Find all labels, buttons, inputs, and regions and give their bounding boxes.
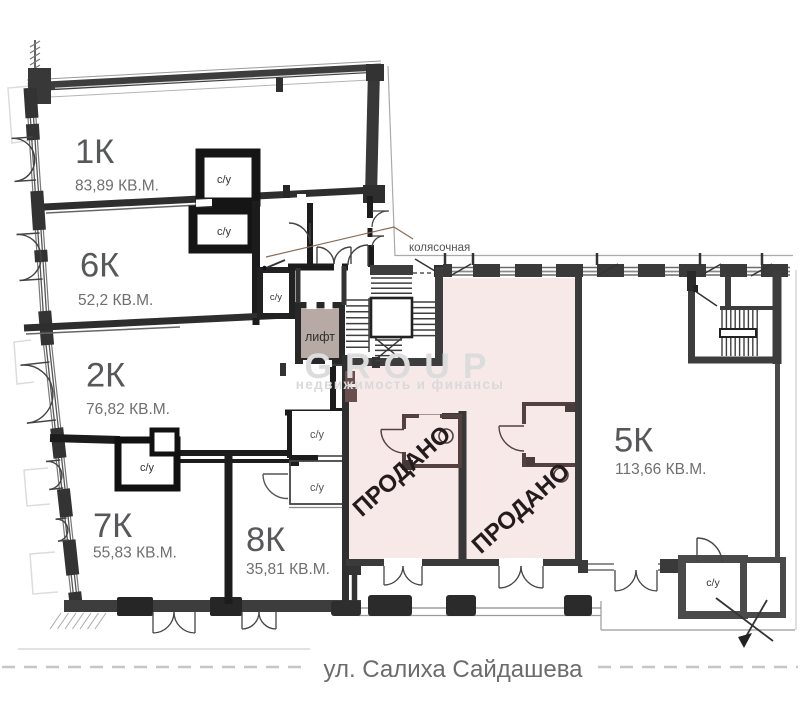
svg-text:колясочная: колясочная bbox=[409, 242, 470, 254]
svg-text:с/у: с/у bbox=[270, 292, 282, 303]
svg-text:8К: 8К bbox=[246, 521, 285, 559]
svg-text:52,2 КВ.М.: 52,2 КВ.М. bbox=[78, 292, 153, 309]
svg-text:76,82 КВ.М.: 76,82 КВ.М. bbox=[86, 401, 170, 418]
svg-text:с/у: с/у bbox=[217, 174, 232, 186]
svg-text:ул. Салиха Сайдашева: ул. Салиха Сайдашева bbox=[323, 656, 583, 683]
svg-text:с/у: с/у bbox=[310, 482, 325, 494]
svg-text:с/у: с/у bbox=[706, 577, 720, 589]
svg-text:2К: 2К bbox=[86, 357, 125, 395]
svg-text:5К: 5К bbox=[614, 422, 653, 460]
svg-text:55,83 КВ.М.: 55,83 КВ.М. bbox=[93, 545, 177, 562]
svg-text:с/у: с/у bbox=[140, 462, 155, 474]
svg-text:лифт: лифт bbox=[305, 330, 335, 344]
svg-text:113,66 КВ.М.: 113,66 КВ.М. bbox=[615, 461, 706, 478]
svg-text:83,89 КВ.М.: 83,89 КВ.М. bbox=[75, 178, 159, 195]
svg-text:с/у: с/у bbox=[217, 226, 232, 238]
svg-text:с/у: с/у bbox=[310, 429, 325, 441]
svg-text:1К: 1К bbox=[75, 133, 114, 171]
svg-text:6К: 6К bbox=[80, 247, 119, 285]
svg-text:7К: 7К bbox=[93, 507, 132, 545]
svg-text:недвижимость и финансы: недвижимость и финансы bbox=[296, 377, 505, 392]
svg-text:35,81 КВ.М.: 35,81 КВ.М. bbox=[246, 561, 330, 578]
